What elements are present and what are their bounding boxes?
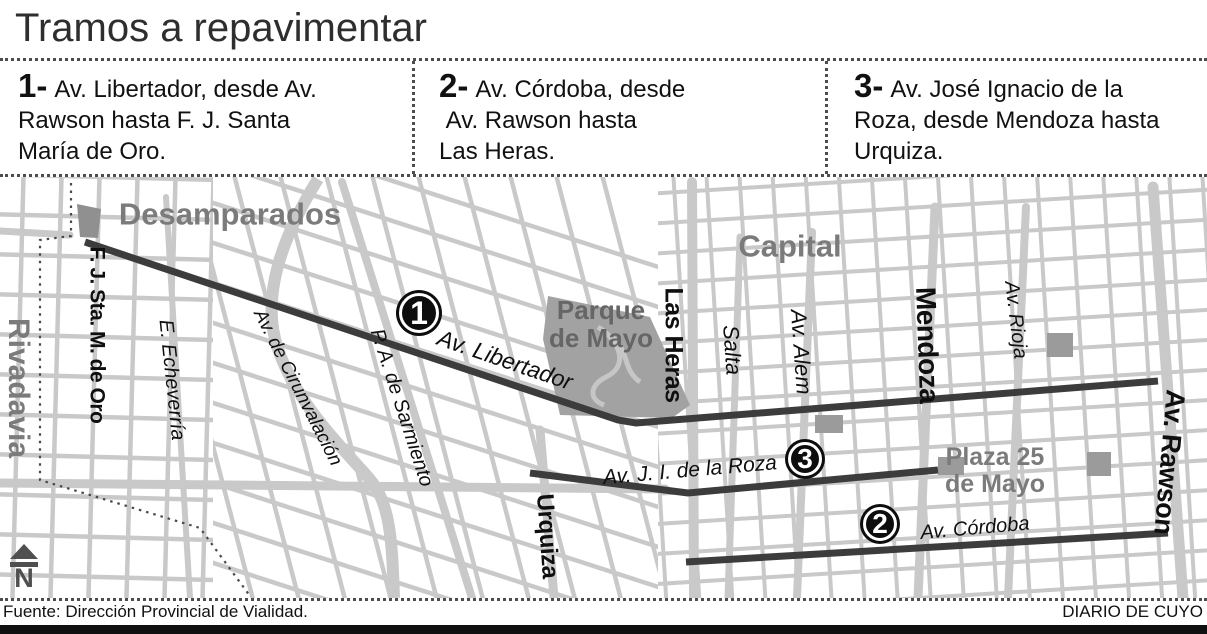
segment-badge-2: 2 (860, 504, 900, 544)
badge-number: 3 (785, 439, 825, 479)
source-note: Fuente: Dirección Provincial de Vialidad… (3, 602, 308, 622)
map-label-parque-de-mayo: Parque de Mayo (549, 296, 653, 352)
map-label-capital: Capital (738, 229, 841, 262)
bottom-bar (0, 625, 1207, 634)
map-label-urquiza: Urquiza (531, 493, 563, 579)
legend-number: 1- (18, 67, 47, 104)
legend-number: 2- (439, 67, 468, 104)
map-label-f-j-sta-m-de-oro: F. J. Sta. M. de Oro (85, 247, 108, 424)
legend-number: 3- (854, 67, 883, 104)
footer: Fuente: Dirección Provincial de Vialidad… (0, 601, 1207, 622)
map-label-rivadavia: Rivadavia (2, 318, 34, 458)
legend-text: Av. José Ignacio de la Roza, desde Mendo… (854, 76, 1160, 165)
map-label-salta: Salta (718, 324, 745, 376)
legend-item-2: 2-Av. Córdoba, desde Av. Rawson hasta La… (412, 61, 825, 174)
map-label-av-alem: Av. Alem (786, 309, 816, 396)
north-letter: N (8, 566, 40, 590)
page-title: Tramos a repavimentar (15, 6, 427, 51)
north-arrow-triangle (10, 544, 38, 559)
legend-text: Av. Libertador, desde Av. Rawson hasta F… (18, 76, 317, 165)
badge-number: 1 (396, 290, 442, 336)
legend-item-3: 3-Av. José Ignacio de la Roza, desde Men… (825, 61, 1207, 174)
infographic: Tramos a repavimentar 1-Av. Libertador, … (0, 0, 1207, 634)
map: DesamparadosCapitalRivadaviaParque de Ma… (0, 177, 1207, 598)
legend: 1-Av. Libertador, desde Av. Rawson hasta… (0, 61, 1207, 174)
segment-badge-3: 3 (785, 439, 825, 479)
segment-badge-1: 1 (396, 290, 442, 336)
map-label-las-heras: Las Heras (660, 287, 687, 402)
north-arrow-icon: N (8, 544, 40, 590)
map-label-plaza-25-de-mayo: Plaza 25 de Mayo (945, 444, 1045, 498)
badge-number: 2 (860, 504, 900, 544)
map-label-desamparados: Desamparados (119, 197, 341, 230)
legend-item-1: 1-Av. Libertador, desde Av. Rawson hasta… (0, 61, 412, 174)
credit: DIARIO DE CUYO (1062, 602, 1203, 622)
legend-text: Av. Córdoba, desde Av. Rawson hasta Las … (439, 76, 685, 165)
map-label-mendoza: Mendoza (910, 286, 944, 403)
